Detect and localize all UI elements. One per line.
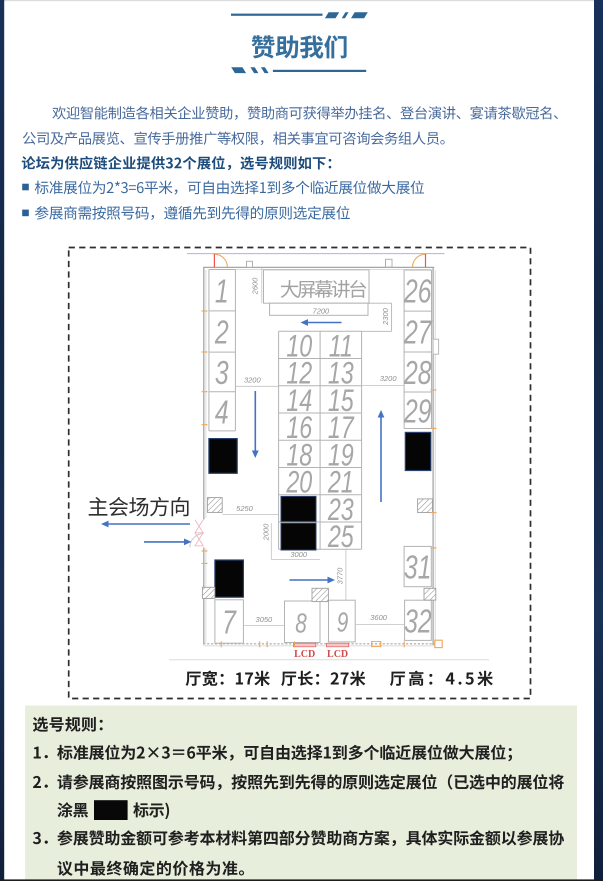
svg-text:31: 31: [404, 549, 432, 587]
svg-text:LCD: LCD: [294, 649, 315, 660]
svg-text:9: 9: [337, 608, 349, 639]
svg-text:LCD: LCD: [327, 649, 348, 660]
svg-text:5250: 5250: [236, 504, 254, 513]
svg-text:2300: 2300: [381, 307, 390, 326]
svg-text:3200: 3200: [380, 374, 398, 383]
svg-text:8: 8: [295, 609, 307, 640]
svg-text:3770: 3770: [335, 567, 344, 585]
svg-text:26: 26: [403, 273, 432, 311]
svg-text:28: 28: [403, 355, 432, 393]
svg-text:3200: 3200: [244, 376, 262, 385]
svg-text:1: 1: [215, 273, 229, 311]
svg-text:7200: 7200: [313, 306, 331, 315]
svg-text:32: 32: [404, 603, 432, 641]
svg-text:3600: 3600: [370, 613, 388, 622]
svg-text:29: 29: [403, 393, 431, 431]
svg-text:27: 27: [403, 314, 433, 352]
svg-text:4: 4: [215, 394, 229, 432]
svg-text:25: 25: [327, 519, 354, 554]
svg-text:2: 2: [214, 314, 229, 352]
svg-text:20: 20: [285, 464, 312, 499]
svg-text:2000: 2000: [261, 523, 270, 542]
svg-text:3: 3: [215, 354, 229, 392]
svg-text:7: 7: [222, 604, 237, 642]
svg-text:3050: 3050: [256, 615, 274, 624]
svg-text:3000: 3000: [290, 550, 308, 559]
svg-text:2600: 2600: [251, 277, 260, 296]
